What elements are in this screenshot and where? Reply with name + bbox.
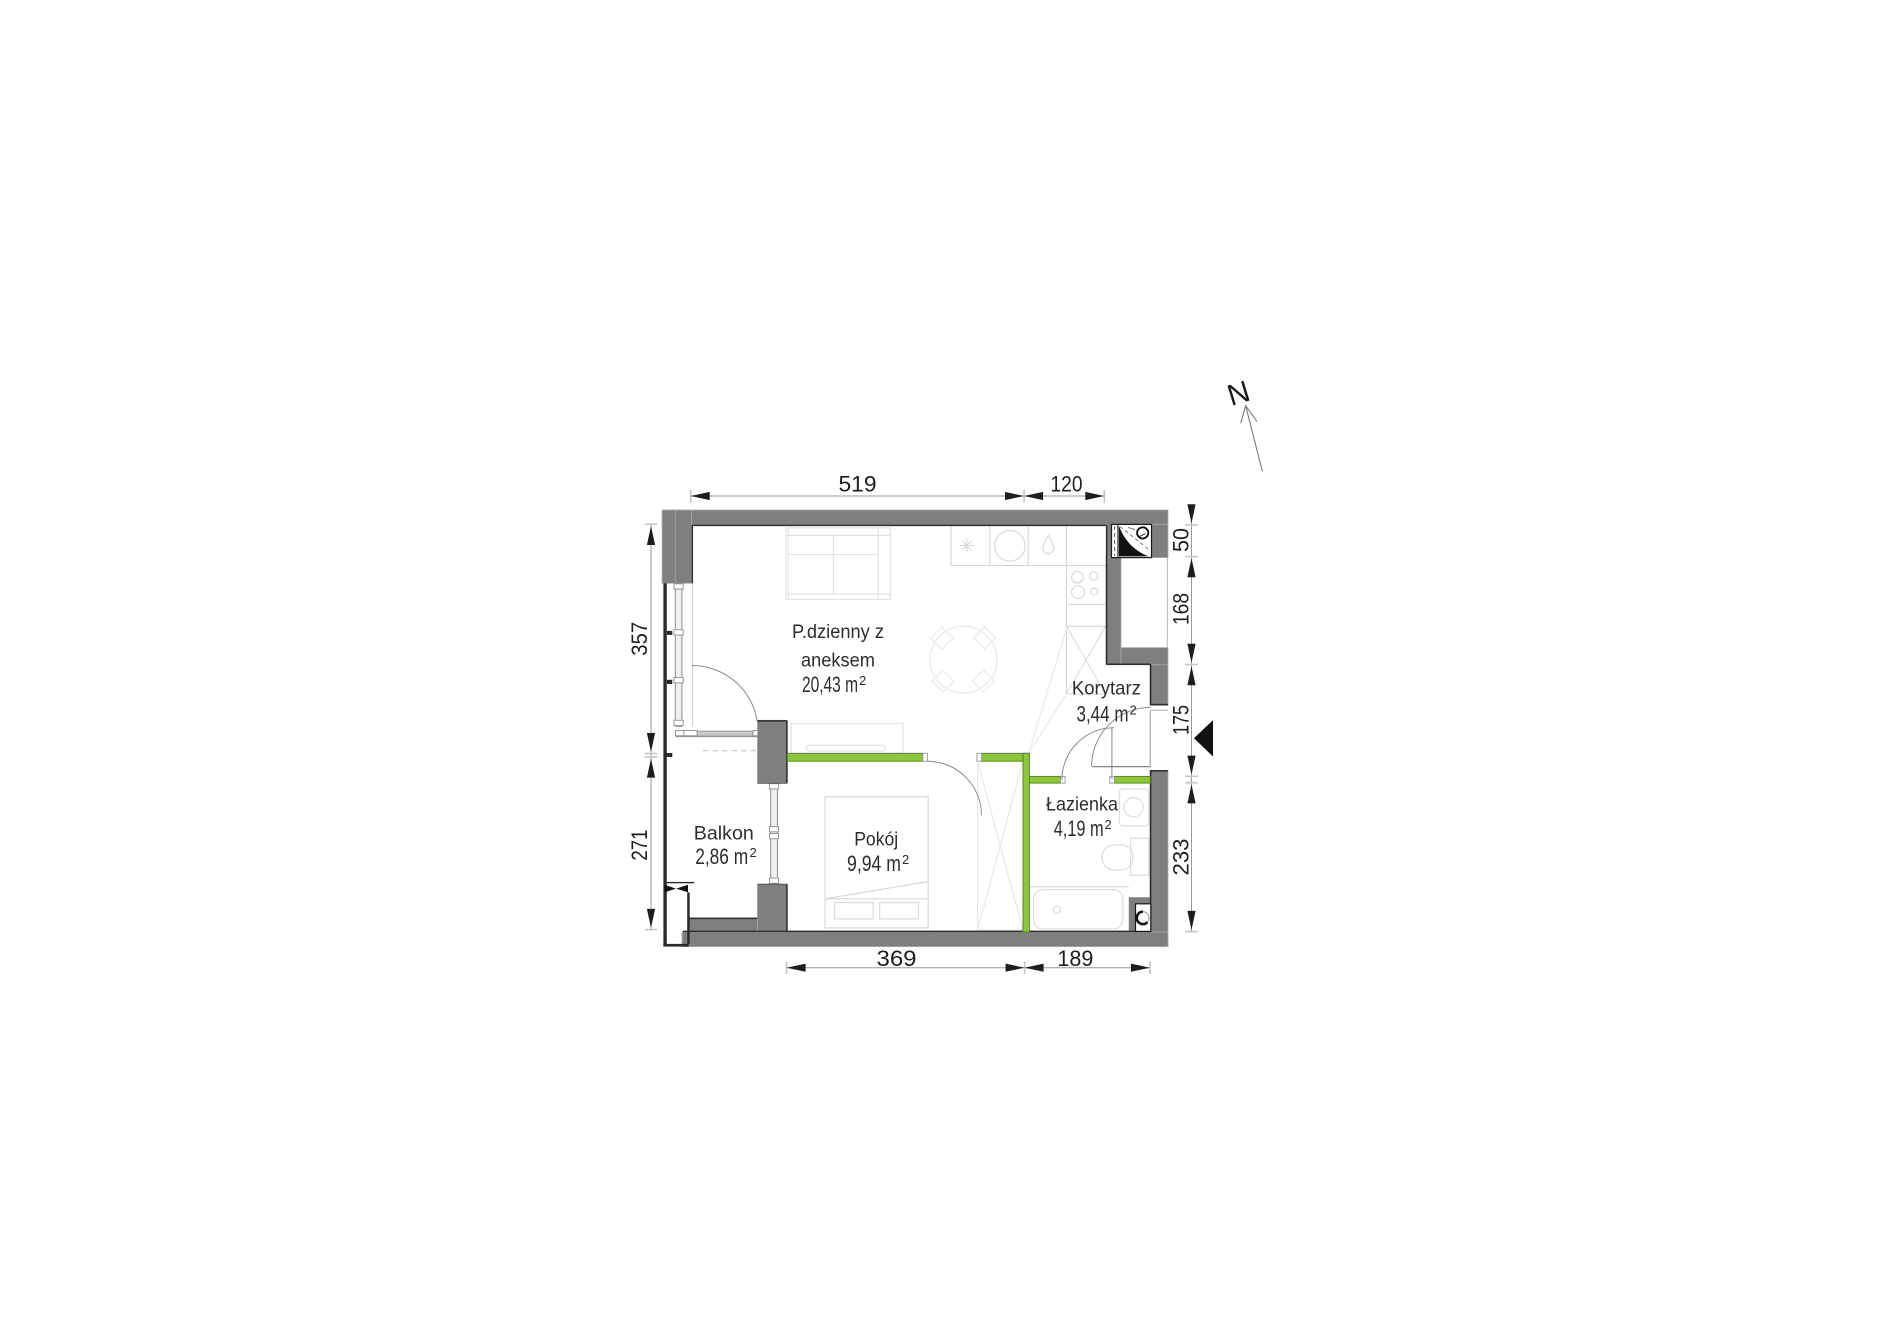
- svg-text:357: 357: [627, 622, 652, 656]
- svg-text:aneksem: aneksem: [801, 650, 875, 672]
- svg-text:519: 519: [839, 472, 877, 497]
- svg-text:Pokój: Pokój: [854, 828, 898, 850]
- svg-text:120: 120: [1051, 472, 1083, 497]
- svg-text:4,19 m: 4,19 m: [1054, 816, 1104, 841]
- svg-text:168: 168: [1169, 593, 1194, 625]
- svg-text:Łazienka: Łazienka: [1046, 793, 1118, 815]
- svg-text:Korytarz: Korytarz: [1072, 678, 1141, 700]
- svg-text:3,44 m: 3,44 m: [1077, 702, 1129, 727]
- svg-text:2,86 m: 2,86 m: [695, 844, 748, 869]
- svg-text:Balkon: Balkon: [694, 823, 754, 845]
- svg-text:9,94 m: 9,94 m: [847, 851, 901, 876]
- svg-text:271: 271: [627, 830, 652, 861]
- svg-text:2: 2: [1130, 703, 1137, 718]
- svg-text:2: 2: [1105, 817, 1112, 832]
- svg-text:50: 50: [1169, 528, 1194, 552]
- svg-text:P.dzienny z: P.dzienny z: [792, 621, 884, 643]
- svg-text:2: 2: [859, 673, 866, 688]
- svg-text:20,43 m: 20,43 m: [802, 672, 858, 697]
- svg-text:2: 2: [902, 852, 909, 867]
- svg-text:233: 233: [1169, 839, 1194, 876]
- svg-text:175: 175: [1169, 705, 1194, 735]
- svg-text:2: 2: [750, 845, 757, 860]
- svg-text:189: 189: [1057, 946, 1093, 971]
- svg-text:369: 369: [877, 946, 917, 971]
